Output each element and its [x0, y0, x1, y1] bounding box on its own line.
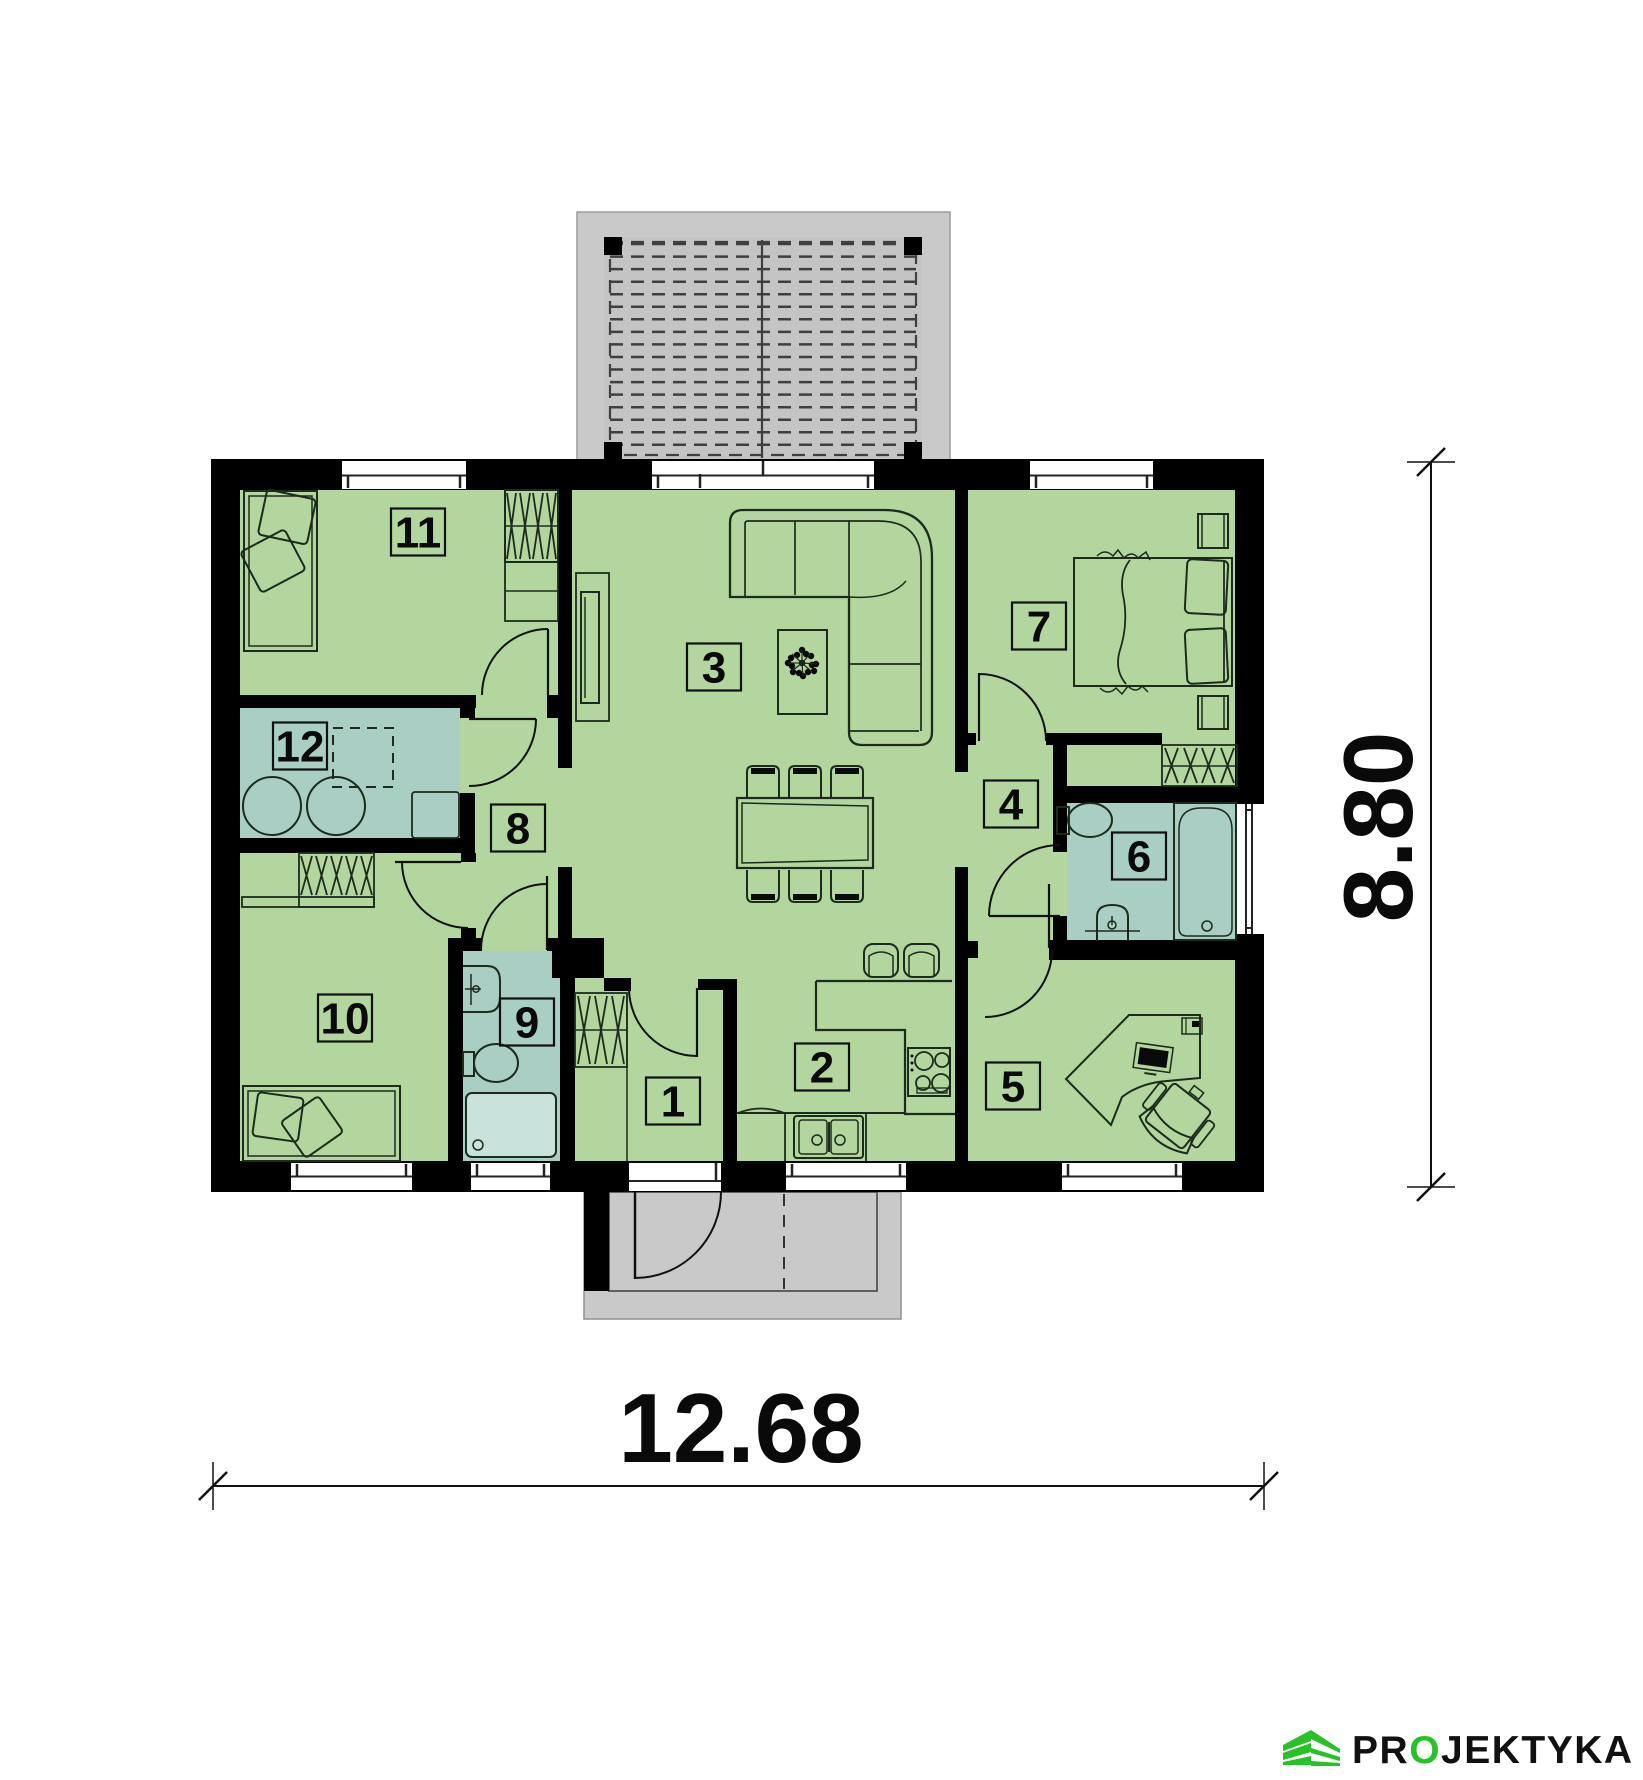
svg-text:8: 8 — [506, 804, 530, 853]
svg-text:3: 3 — [702, 643, 726, 692]
svg-text:PROJEKTYKA: PROJEKTYKA — [1352, 1729, 1634, 1772]
svg-text:2: 2 — [810, 1043, 834, 1092]
svg-text:1: 1 — [661, 1077, 685, 1126]
svg-text:12: 12 — [276, 722, 325, 771]
svg-text:12.68: 12.68 — [618, 1373, 863, 1483]
svg-text:6: 6 — [1127, 832, 1151, 881]
svg-text:5: 5 — [1001, 1062, 1025, 1111]
svg-text:4: 4 — [999, 780, 1024, 829]
svg-text:9: 9 — [515, 998, 539, 1047]
svg-text:7: 7 — [1027, 602, 1051, 651]
svg-text:8.80: 8.80 — [1323, 732, 1433, 923]
svg-text:11: 11 — [395, 508, 442, 557]
svg-text:10: 10 — [321, 994, 370, 1043]
